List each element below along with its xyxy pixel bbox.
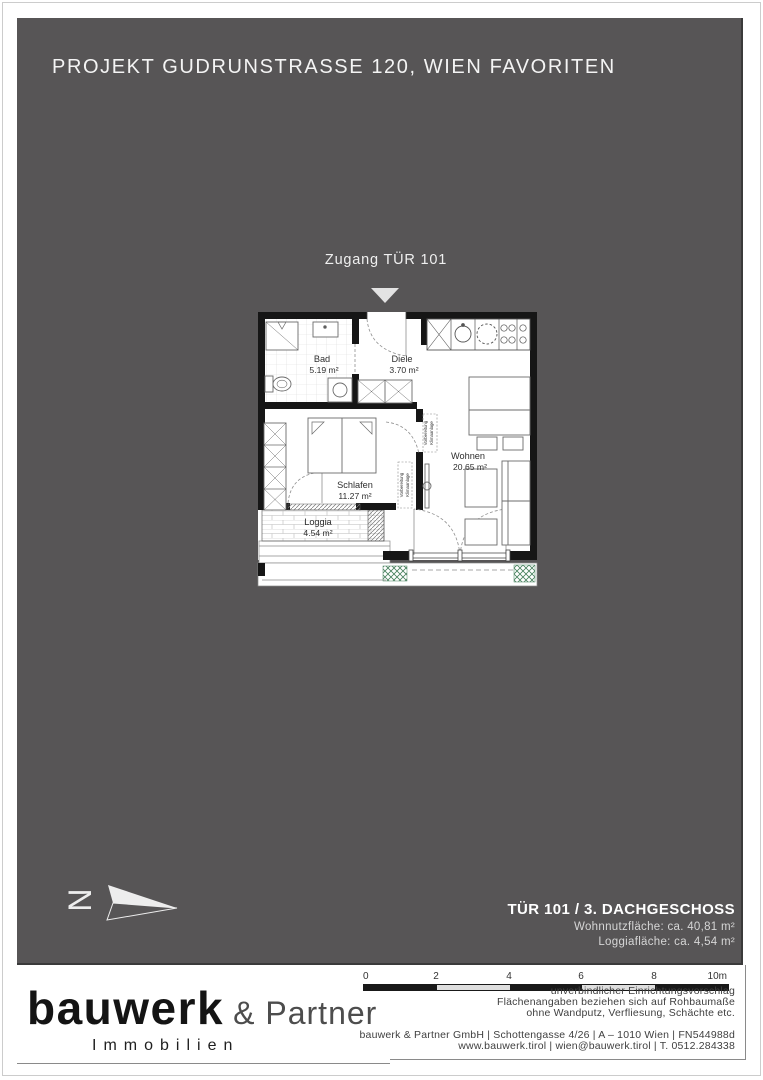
- scale-label: 4: [506, 971, 512, 982]
- disclaimer: unverbindlicher Einrichtungsvorschlag Fl…: [497, 986, 735, 1019]
- klima-label: Vorbereitung: [423, 420, 428, 445]
- bathroom-sink: [313, 322, 338, 337]
- room-area: 3.70 m²: [389, 365, 418, 375]
- wardrobe-schlafen: [264, 423, 286, 510]
- page: { "page": { "title": "PROJEKT GUDRUNSTRA…: [0, 0, 763, 1080]
- scale-label: 10m: [708, 971, 727, 982]
- chair: [503, 437, 523, 450]
- room-name: Bad: [314, 354, 330, 364]
- room-area: 4.54 m²: [303, 528, 332, 538]
- living-area: Wohnnutzfläche: ca. 40,81 m²: [507, 921, 735, 933]
- room-name: Wohnen: [451, 451, 485, 461]
- room-name: Schlafen: [337, 480, 373, 490]
- dining-table: [469, 377, 530, 435]
- loggia-divider-hatch: [368, 510, 384, 541]
- logo-immobilien: Immobilien: [92, 1037, 239, 1055]
- loggia-threshold: [288, 504, 360, 510]
- kitchen-counter: [427, 319, 530, 350]
- chair: [477, 437, 497, 450]
- logo-bauwerk: bauwerk: [27, 982, 224, 1034]
- scale-label: 0: [363, 971, 369, 982]
- toilet: [273, 377, 291, 391]
- coffee-table: [465, 469, 497, 507]
- logo-box: bauwerk& Partner Immobilien: [17, 965, 390, 1064]
- disclaimer-line: ohne Wandputz, Verfliesung, Schächte etc…: [497, 1008, 735, 1019]
- north-label: N: [62, 888, 98, 911]
- floor-plan: Vorbereitung Klimaanlage Vorbereitung Kl…: [256, 304, 538, 590]
- sofa: [502, 461, 530, 545]
- toilet-cistern: [265, 376, 273, 392]
- loggia-area: Loggiafläche: ca. 4,54 m²: [507, 936, 735, 948]
- company-logo: bauwerk& Partner: [27, 981, 377, 1035]
- logo-partner: & Partner: [233, 995, 377, 1031]
- unit-title: TÜR 101 / 3. DACHGESCHOSS: [507, 901, 735, 918]
- contact-line: www.bauwerk.tirol | wien@bauwerk.tirol |…: [359, 1041, 735, 1052]
- scale-label: 6: [578, 971, 584, 982]
- room-name: Diele: [392, 354, 413, 364]
- unit-info: TÜR 101 / 3. DACHGESCHOSS Wohnnutzfläche…: [507, 901, 735, 948]
- room-area: 5.19 m²: [309, 365, 338, 375]
- wardrobe-diele: [358, 380, 412, 403]
- entrance-label: Zugang TÜR 101: [256, 252, 516, 268]
- ottoman: [465, 519, 497, 545]
- contact-info: bauwerk & Partner GmbH | Schottengasse 4…: [359, 1030, 735, 1052]
- page-title: PROJEKT GUDRUNSTRASSE 120, WIEN FAVORITE…: [52, 56, 616, 79]
- planter-left: [383, 566, 407, 581]
- scale-label: 8: [651, 971, 657, 982]
- washing-machine: [328, 378, 352, 402]
- loggia-railing: [259, 541, 390, 563]
- room-area: 20.65 m²: [453, 462, 487, 472]
- scale-label: 2: [433, 971, 439, 982]
- north-arrow-icon: [108, 885, 177, 908]
- klima-label: Vorbereitung: [399, 472, 404, 497]
- klima-label: Klimaanlage: [405, 473, 410, 497]
- klima-label: Klimaanlage: [429, 421, 434, 445]
- room-name: Loggia: [304, 517, 332, 527]
- planter-right: [514, 565, 535, 582]
- entrance-arrow-icon: [371, 288, 399, 303]
- room-area: 11.27 m²: [338, 491, 371, 501]
- north-arrow: N: [50, 870, 190, 940]
- radiator: [425, 464, 429, 508]
